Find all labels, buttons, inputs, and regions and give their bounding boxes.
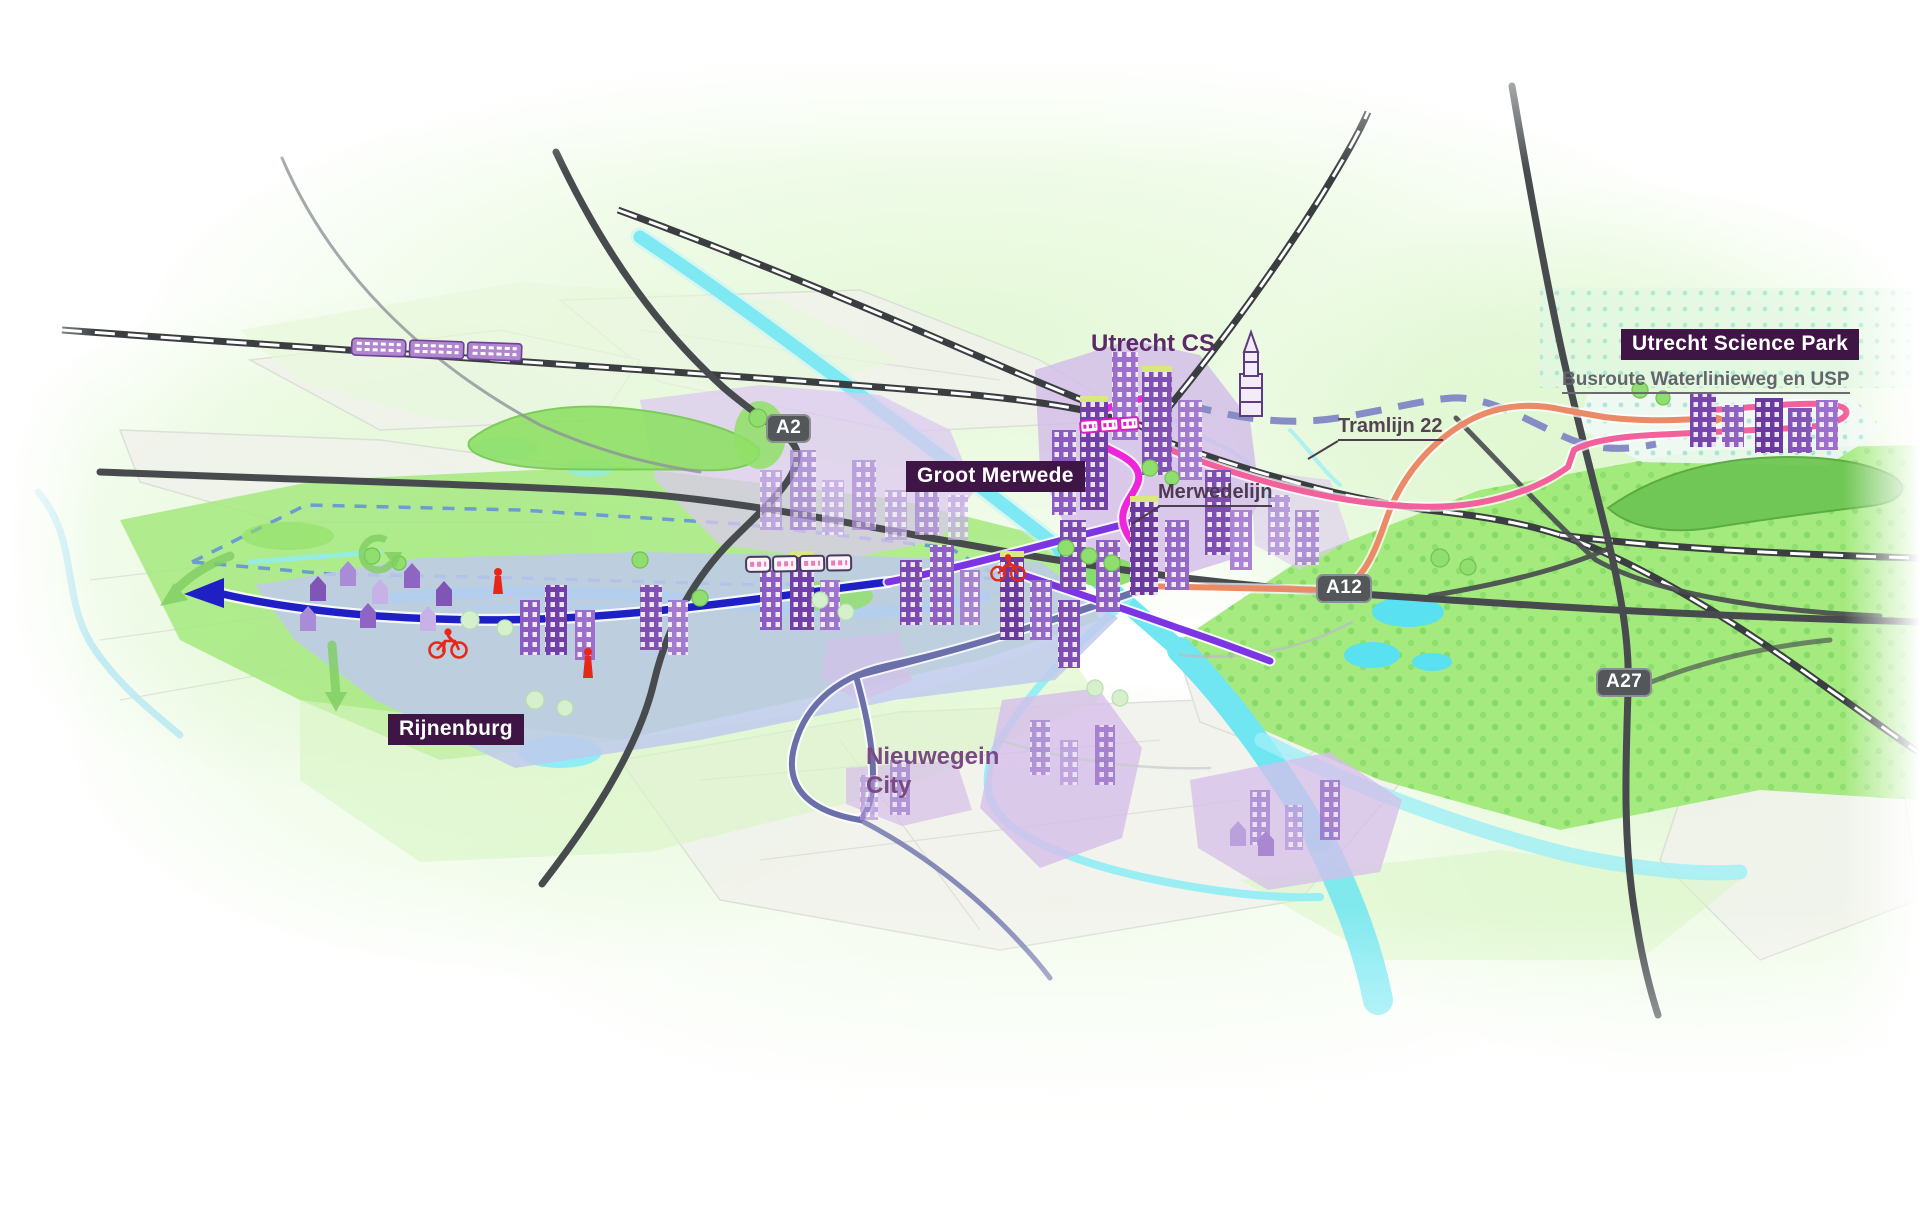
route-label-busroute: Busroute Waterlinieweg en USP <box>1562 369 1850 394</box>
map-canvas <box>0 0 1920 1225</box>
nieuwegein-line-1: Nieuwegein <box>866 742 999 771</box>
area-label-utrecht-cs: Utrecht CS <box>1091 330 1215 358</box>
nieuwegein-line-2: City <box>866 771 999 800</box>
route-label-tramlijn-22: Tramlijn 22 <box>1338 415 1443 441</box>
area-label-utrecht-science-park: Utrecht Science Park <box>1621 329 1859 360</box>
pedestrian-icon-2 <box>583 648 593 678</box>
area-label-rijnenburg: Rijnenburg <box>388 714 524 745</box>
highway-badge-a12: A12 <box>1316 574 1372 603</box>
area-label-nieuwegein-city: Nieuwegein City <box>866 742 999 801</box>
illustrated-transit-map-utrecht: Utrecht CS Utrecht Science Park Busroute… <box>0 0 1920 1225</box>
area-label-groot-merwede: Groot Merwede <box>906 461 1085 492</box>
pedestrian-icon-1 <box>493 568 503 594</box>
route-label-merwedelijn: Merwedelijn <box>1158 481 1272 507</box>
highway-badge-a2: A2 <box>766 414 811 443</box>
highway-badge-a27: A27 <box>1596 668 1652 697</box>
